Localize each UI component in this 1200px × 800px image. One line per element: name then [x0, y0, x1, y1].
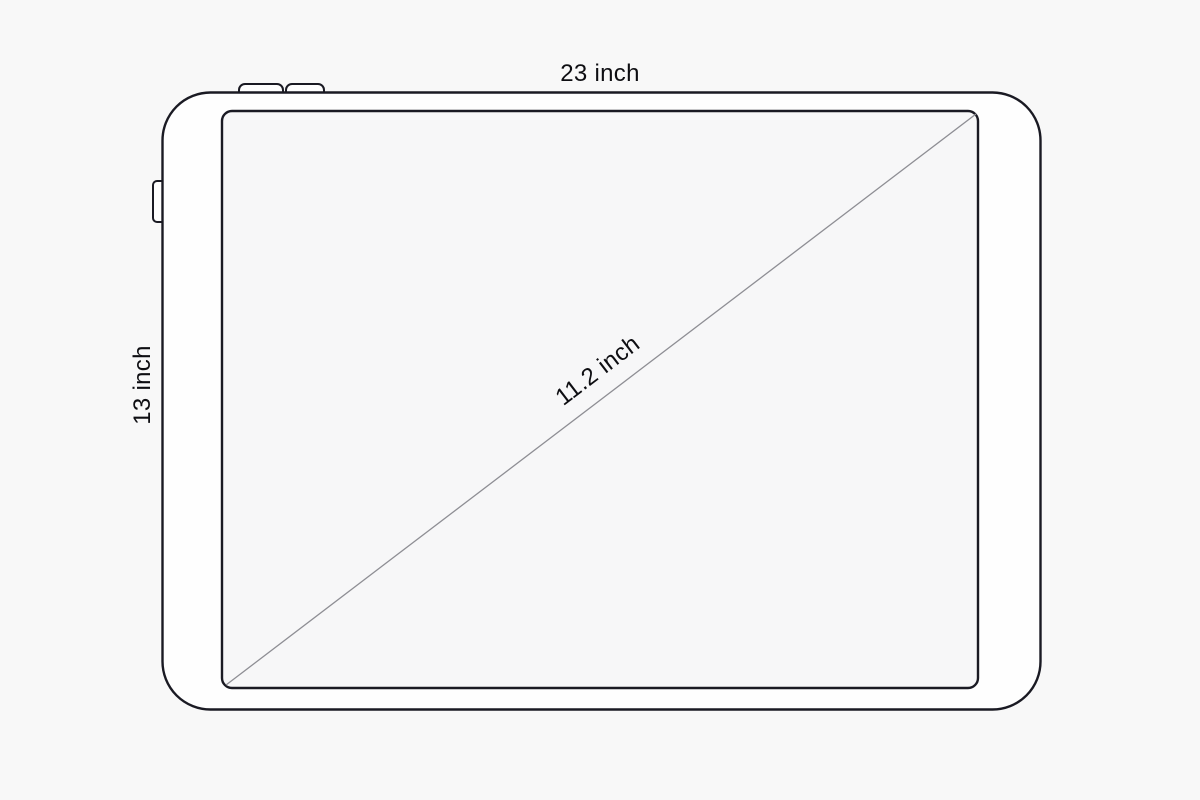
- height-dimension-label: 13 inch: [129, 345, 157, 425]
- tablet-drawing: [0, 0, 1200, 800]
- device-dimension-diagram: 23 inch 13 inch 11.2 inch: [0, 0, 1200, 800]
- width-dimension-label: 23 inch: [560, 60, 640, 88]
